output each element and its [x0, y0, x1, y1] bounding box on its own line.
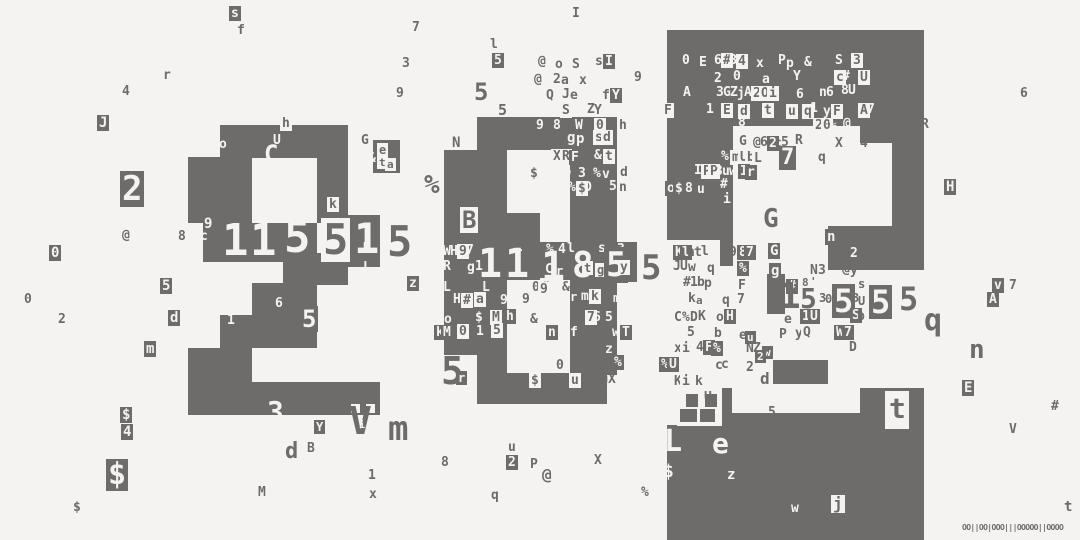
noise-glyph: x — [579, 74, 587, 87]
noise-glyph: U — [848, 84, 856, 97]
noise-glyph: $ — [530, 167, 538, 180]
noise-glyph: 2 — [120, 171, 144, 207]
noise-glyph: x — [369, 488, 377, 501]
noise-glyph: A — [987, 292, 999, 307]
noise-glyph: D — [849, 341, 857, 354]
noise-glyph: V — [1009, 423, 1017, 436]
noise-glyph: i — [767, 86, 779, 101]
noise-glyph: 0 — [24, 293, 32, 306]
noise-glyph: # — [842, 70, 850, 83]
noise-glyph: 9 — [500, 294, 508, 307]
grid-square-icon — [686, 394, 698, 407]
noise-glyph: 5 — [160, 278, 172, 294]
noise-glyph: M — [441, 325, 453, 340]
noise-glyph: U — [704, 391, 712, 404]
noise-glyph: G — [361, 134, 369, 147]
noise-glyph: 8 — [178, 230, 186, 243]
noise-glyph: p — [576, 132, 584, 146]
noise-glyph: i — [680, 341, 692, 356]
noise-glyph: 8 — [738, 116, 746, 129]
noise-glyph: 5 — [869, 285, 892, 319]
noise-glyph: 5 — [639, 250, 663, 286]
noise-glyph: 1 — [222, 219, 249, 263]
noise-glyph: 5 — [491, 323, 503, 338]
noise-glyph: M — [258, 486, 266, 499]
noise-glyph: $ — [475, 311, 483, 324]
noise-block — [477, 373, 607, 404]
noise-glyph: t — [762, 103, 774, 118]
noise-glyph: t — [582, 261, 593, 275]
noise-glyph: 5 — [492, 53, 504, 68]
noise-glyph: 2 — [848, 246, 860, 261]
noise-glyph: B — [460, 207, 478, 233]
noise-glyph: q — [491, 489, 499, 502]
noise-glyph: a — [762, 73, 770, 86]
noise-glyph: Y — [594, 104, 602, 117]
noise-glyph: w — [791, 502, 799, 515]
noise-glyph: I — [603, 54, 615, 69]
noise-glyph: D — [690, 311, 698, 324]
noise-glyph: i — [680, 374, 692, 389]
noise-glyph: a — [696, 295, 703, 306]
noise-glyph: y — [748, 178, 756, 191]
noise-glyph: 5 — [609, 180, 617, 193]
noise-glyph: t — [887, 394, 908, 424]
noise-glyph: a — [474, 292, 486, 307]
noise-glyph: % — [829, 119, 837, 132]
noise-glyph: & — [804, 56, 812, 69]
noise-glyph: U — [858, 70, 870, 85]
noise-glyph: H — [453, 293, 461, 306]
noise-glyph: % — [737, 261, 749, 276]
noise-glyph: $ — [73, 501, 81, 514]
noise-glyph: L — [363, 261, 371, 274]
noise-glyph: 2 — [506, 455, 518, 470]
noise-glyph: S — [835, 54, 843, 67]
noise-glyph: 4 — [860, 137, 868, 150]
noise-glyph: 9 — [634, 71, 642, 84]
noise-glyph: $ — [663, 463, 674, 481]
noise-glyph: f — [237, 24, 245, 37]
noise-glyph: E — [962, 380, 974, 396]
noise-glyph: @ — [843, 117, 851, 130]
noise-glyph: % — [424, 172, 440, 198]
noise-glyph: X — [608, 373, 616, 386]
noise-glyph: R — [443, 260, 451, 273]
noise-glyph: d — [618, 165, 630, 180]
noise-glyph: u — [508, 441, 516, 454]
noise-glyph: y — [850, 264, 858, 277]
noise-glyph: n — [825, 229, 837, 245]
noise-glyph: 7 — [867, 103, 875, 116]
noise-glyph: 5 — [897, 282, 920, 316]
noise-glyph: H — [944, 179, 956, 195]
noise-glyph: 5 — [768, 406, 776, 419]
noise-glyph: 0 — [682, 54, 690, 67]
noise-glyph: I — [572, 7, 580, 20]
noise-glyph: u — [786, 104, 798, 119]
noise-glyph: Y — [610, 88, 622, 103]
noise-glyph: 5 — [385, 220, 414, 264]
noise-glyph: & — [594, 149, 602, 162]
noise-glyph: U — [858, 295, 865, 307]
noise-glyph: N — [452, 136, 460, 150]
noise-glyph: 6 — [796, 88, 804, 101]
noise-glyph: 7 — [412, 21, 420, 34]
noise-glyph: 5 — [284, 216, 311, 260]
noise-glyph: F — [569, 150, 581, 165]
noise-glyph: 1 — [478, 244, 502, 284]
noise-glyph: 2 — [714, 72, 722, 85]
noise-glyph: D — [584, 181, 592, 194]
noise-glyph: @ — [842, 263, 850, 276]
noise-glyph: 4 — [122, 85, 130, 98]
noise-glyph: d — [601, 130, 613, 145]
noise-glyph: 8 — [553, 119, 561, 132]
noise-glyph: F — [831, 104, 843, 119]
noise-glyph: 1 — [474, 324, 486, 339]
noise-glyph: l — [701, 245, 709, 258]
noise-glyph: 9 — [396, 87, 404, 100]
noise-glyph: 7 — [779, 146, 796, 170]
noise-glyph: l — [490, 38, 498, 51]
noise-glyph: h — [504, 309, 516, 324]
noise-glyph: 3 — [578, 167, 586, 180]
noise-glyph: $ — [120, 407, 132, 423]
noise-glyph: 6 — [275, 297, 283, 310]
noise-glyph: 7 — [744, 245, 756, 260]
noise-glyph: 4 — [558, 243, 566, 256]
noise-glyph: m — [581, 290, 589, 303]
noise-glyph: % — [612, 355, 624, 370]
noise-glyph: s — [595, 55, 603, 68]
noise-glyph: M — [562, 311, 570, 324]
noise-glyph: f — [570, 326, 578, 339]
noise-glyph: k — [688, 292, 696, 305]
noise-glyph: r — [163, 69, 171, 82]
noise-glyph: 1 — [250, 219, 277, 263]
noise-hole — [732, 388, 860, 413]
noise-glyph: 3 — [267, 398, 284, 426]
noise-glyph: s — [229, 6, 241, 21]
noise-glyph: n — [546, 325, 558, 340]
noise-glyph: s — [858, 278, 865, 290]
noise-glyph: k — [327, 197, 339, 212]
noise-glyph: 5 — [687, 326, 695, 339]
noise-glyph: 7 — [1009, 279, 1017, 292]
noise-glyph: 5 — [605, 311, 613, 324]
noise-glyph: $ — [673, 181, 685, 196]
noise-glyph: F — [736, 278, 748, 293]
noise-glyph: y — [618, 260, 630, 275]
noise-glyph: E — [699, 56, 707, 69]
noise-glyph: 5 — [300, 306, 318, 332]
noise-block — [570, 213, 617, 242]
noise-glyph: 6 — [1020, 87, 1028, 100]
noise-glyph: K — [698, 310, 706, 323]
noise-glyph: # — [461, 293, 473, 308]
noise-glyph: 1 — [706, 103, 714, 116]
noise-glyph: 0 — [733, 70, 741, 83]
grid-square-icon — [700, 409, 715, 422]
noise-glyph: 5 — [474, 80, 488, 104]
noise-glyph: @ — [659, 119, 667, 132]
noise-glyph: 7 — [466, 244, 474, 257]
noise-glyph: q — [818, 151, 826, 164]
noise-glyph: C — [674, 311, 682, 324]
noise-glyph: 0 — [457, 324, 469, 339]
noise-glyph: i — [359, 421, 365, 431]
noise-glyph: 3 — [851, 53, 863, 68]
noise-glyph: h — [619, 119, 627, 132]
noise-glyph: r — [456, 371, 467, 385]
noise-glyph: 5 — [321, 218, 350, 262]
noise-glyph: $ — [529, 373, 541, 388]
noise-glyph: 6 — [826, 86, 834, 99]
noise-glyph: % — [593, 167, 601, 180]
noise-glyph: R — [921, 118, 929, 131]
grid-square-icon — [680, 409, 697, 422]
noise-glyph: $ — [106, 459, 128, 491]
noise-glyph: 1 — [368, 469, 376, 482]
noise-hole — [540, 213, 570, 242]
noise-block — [188, 157, 252, 223]
noise-glyph: m — [613, 292, 620, 304]
noise-glyph: u — [697, 183, 705, 196]
noise-glyph: t — [1064, 500, 1072, 514]
noise-glyph: q — [924, 306, 942, 336]
noise-block — [188, 348, 252, 415]
noise-glyph: E — [721, 103, 733, 118]
noise-glyph: e — [784, 313, 792, 326]
noise-glyph: P — [778, 54, 786, 67]
noise-glyph: P — [530, 458, 538, 471]
noise-glyph: G — [763, 206, 779, 232]
noise-glyph: @ — [540, 466, 554, 484]
noise-glyph: S — [560, 103, 572, 118]
noise-glyph: u — [569, 373, 581, 388]
noise-glyph: d — [285, 441, 298, 463]
noise-glyph: y — [823, 105, 831, 118]
noise-glyph: a — [561, 74, 569, 87]
noise-glyph: 8 — [441, 456, 449, 469]
noise-glyph: & — [368, 152, 376, 165]
noise-glyph: C — [264, 142, 278, 166]
noise-glyph: d — [168, 310, 180, 326]
noise-glyph: Y — [793, 70, 801, 83]
noise-glyph: g — [467, 261, 475, 274]
noise-glyph: h — [280, 116, 292, 131]
noise-field: sfI73l59r4J6@oSsI@2ax9QJefY55SZY98W0hgps… — [0, 0, 1080, 540]
noise-glyph: d — [760, 371, 770, 387]
noise-glyph: % — [641, 486, 649, 499]
noise-glyph: Q — [546, 89, 554, 102]
noise-glyph: v — [992, 278, 1004, 293]
noise-glyph: z — [727, 468, 735, 482]
noise-glyph: 1 — [810, 102, 818, 115]
noise-glyph: U — [680, 260, 688, 273]
noise-glyph: c — [721, 358, 729, 371]
noise-glyph: 0 — [556, 359, 564, 372]
noise-glyph: e — [712, 430, 729, 458]
noise-glyph: m — [388, 412, 408, 446]
noise-glyph: S — [578, 344, 586, 357]
noise-glyph: 0 — [49, 245, 61, 261]
noise-glyph: & — [530, 313, 538, 326]
noise-glyph: % — [711, 341, 723, 356]
noise-glyph: w — [688, 261, 696, 274]
noise-glyph: % — [568, 181, 576, 194]
noise-glyph: K — [363, 242, 371, 255]
noise-glyph: m — [144, 341, 156, 357]
noise-glyph: 9 — [538, 282, 550, 297]
noise-glyph: k — [693, 374, 705, 389]
noise-glyph: B — [307, 442, 315, 455]
noise-glyph: b — [857, 310, 865, 323]
noise-glyph: i — [721, 192, 733, 207]
noise-glyph: X — [835, 137, 843, 150]
noise-glyph: z — [407, 276, 419, 291]
noise-glyph: F — [662, 103, 674, 118]
noise-glyph: q — [707, 262, 715, 275]
noise-glyph: L — [664, 427, 682, 457]
noise-glyph: 3 — [818, 264, 826, 277]
noise-glyph: e — [570, 89, 578, 102]
noise-glyph: H — [724, 309, 736, 324]
barcode-pattern: OO||OO|OOO|||OOOOO||OOOO — [962, 524, 1063, 532]
noise-glyph: p — [704, 277, 712, 290]
noise-glyph: % — [546, 243, 554, 256]
noise-glyph: @ — [600, 373, 608, 386]
noise-glyph: P — [779, 328, 787, 341]
noise-glyph: b — [562, 326, 570, 339]
noise-glyph: X — [594, 454, 602, 467]
noise-glyph: 5 — [498, 103, 507, 118]
noise-glyph: j — [831, 495, 845, 513]
noise-glyph: r — [570, 291, 577, 303]
noise-glyph: @ — [536, 54, 548, 69]
noise-block — [773, 360, 828, 384]
noise-glyph: 1 — [227, 314, 235, 327]
noise-glyph: b — [714, 327, 722, 340]
noise-glyph: A — [683, 86, 691, 99]
noise-glyph: 3 — [402, 57, 410, 70]
noise-glyph: J — [562, 88, 570, 101]
noise-glyph: g — [567, 131, 575, 145]
noise-glyph: 2 — [553, 73, 561, 86]
noise-glyph: J — [756, 177, 764, 190]
noise-glyph: S — [572, 58, 580, 71]
noise-block — [317, 157, 348, 223]
noise-glyph: 6 — [593, 311, 601, 324]
noise-glyph: 7 — [737, 293, 745, 306]
noise-glyph: o — [219, 138, 227, 151]
noise-glyph: 0 — [562, 290, 570, 303]
noise-glyph: Q — [801, 325, 813, 340]
noise-glyph: U — [808, 309, 820, 324]
noise-glyph: @ — [122, 229, 130, 242]
noise-block — [477, 150, 507, 213]
noise-glyph: L — [443, 281, 451, 294]
noise-glyph: r — [556, 265, 563, 277]
noise-glyph: 8 — [685, 182, 693, 195]
noise-glyph: 4 — [736, 54, 748, 69]
noise-glyph: o — [555, 58, 563, 71]
noise-glyph: @ — [534, 73, 542, 86]
noise-glyph: f — [602, 89, 610, 102]
noise-glyph: w — [612, 326, 620, 339]
noise-block — [477, 213, 540, 242]
noise-glyph: 2 — [58, 313, 66, 326]
noise-glyph: L — [752, 151, 764, 166]
noise-glyph: 2 — [755, 350, 766, 363]
noise-glyph: % — [721, 150, 729, 163]
noise-glyph: % — [682, 311, 690, 324]
noise-glyph: 9 — [536, 119, 544, 132]
noise-glyph: T — [620, 325, 632, 340]
noise-glyph: # — [1051, 400, 1059, 413]
noise-glyph: 9 — [729, 246, 737, 259]
noise-glyph: j — [557, 341, 565, 354]
noise-glyph: r — [514, 246, 522, 260]
noise-glyph: Y — [314, 420, 325, 434]
noise-glyph: w — [729, 165, 737, 178]
noise-glyph: # — [720, 178, 728, 191]
noise-glyph: C — [545, 263, 553, 276]
noise-glyph: U — [667, 357, 679, 372]
noise-glyph: 4 — [121, 424, 133, 440]
noise-glyph: n — [617, 180, 629, 195]
noise-glyph: J — [97, 115, 109, 131]
noise-glyph: 1 — [779, 279, 801, 315]
noise-glyph: n — [969, 337, 985, 363]
noise-glyph: 7 — [842, 325, 854, 340]
noise-glyph: c — [200, 230, 208, 243]
noise-glyph: q — [720, 293, 732, 308]
noise-glyph: a — [385, 158, 396, 171]
noise-glyph: k — [589, 289, 601, 304]
noise-glyph: G — [739, 135, 747, 148]
noise-glyph: x — [756, 57, 764, 70]
noise-glyph: G — [768, 243, 780, 259]
noise-block — [220, 315, 252, 350]
noise-glyph: 2 — [746, 361, 754, 374]
noise-glyph: e — [377, 143, 388, 157]
noise-glyph: t — [603, 149, 615, 164]
